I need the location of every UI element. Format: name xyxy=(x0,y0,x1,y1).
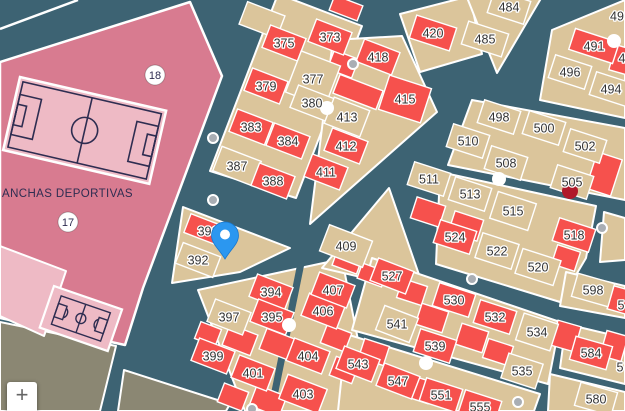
junction-dot-gray xyxy=(513,397,523,407)
parcel-label-413: 413 xyxy=(337,111,358,125)
parcel-label-494: 494 xyxy=(601,83,622,97)
parcel-label-373: 373 xyxy=(320,31,341,45)
parcel-label-388: 388 xyxy=(263,175,284,189)
parcel-label-547: 547 xyxy=(388,375,409,389)
parcel-label-412: 412 xyxy=(336,140,357,154)
parcel-label-513: 513 xyxy=(460,188,481,202)
parcel-label-fragment: 49 xyxy=(610,10,624,24)
parcel-label-539: 539 xyxy=(425,340,446,354)
parcel-label-379: 379 xyxy=(256,80,277,94)
parcel-label-530: 530 xyxy=(444,294,465,308)
parcel-label-484: 484 xyxy=(499,1,520,15)
parcel-label-527: 527 xyxy=(382,270,403,284)
parcel-label-404: 404 xyxy=(298,350,319,364)
parcel-label-496: 496 xyxy=(560,66,581,80)
block-pill-label-18: 18 xyxy=(149,70,161,82)
parcel-label-380: 380 xyxy=(302,97,323,111)
parcel-label-399: 399 xyxy=(203,350,224,364)
junction-dot-white xyxy=(282,318,296,332)
parcel-label-543: 543 xyxy=(348,358,369,372)
parcel-label-420: 420 xyxy=(423,27,444,41)
junction-dot-gray xyxy=(348,59,358,69)
junction-dot-gray xyxy=(597,223,607,233)
parcel-label-520: 520 xyxy=(528,261,549,275)
parcel-label-518: 518 xyxy=(564,229,585,243)
map-block xyxy=(600,212,625,262)
parcel-label-415: 415 xyxy=(395,93,416,107)
parcel-label-407: 407 xyxy=(323,284,344,298)
area-label-canchas-deportivas: ANCHAS DEPORTIVAS xyxy=(2,188,133,200)
parcel-label-411: 411 xyxy=(316,166,336,180)
parcel-label-397: 397 xyxy=(219,311,240,325)
parcel-label-534: 534 xyxy=(527,326,548,340)
parcel-label-584: 584 xyxy=(581,347,602,361)
parcel-label-555: 555 xyxy=(470,401,491,411)
block-pill-label-17: 17 xyxy=(62,217,74,229)
parcel-label-384: 384 xyxy=(278,135,299,149)
junction-dot-white xyxy=(492,172,506,186)
parcel-label-551: 551 xyxy=(431,389,452,403)
parcel-label-502: 502 xyxy=(575,140,596,154)
parcel-label-406: 406 xyxy=(313,305,334,319)
junction-dot-gray xyxy=(208,195,218,205)
parcel-label-598: 598 xyxy=(583,284,604,298)
junction-dot-white xyxy=(419,356,433,370)
parcel-label-491: 491 xyxy=(584,40,605,54)
map-canvas[interactable]: 3733753773793803833843873883913923943953… xyxy=(0,0,625,411)
parcel-label-535: 535 xyxy=(512,365,533,379)
parcel-label-fragment: 5 xyxy=(618,299,625,313)
junction-dot-gray xyxy=(208,133,218,143)
parcel-label-392: 392 xyxy=(188,254,209,268)
parcel-label-522: 522 xyxy=(487,245,508,259)
parcel-label-505: 505 xyxy=(562,176,583,190)
parcel-label-524: 524 xyxy=(445,231,466,245)
parcel-label-580: 580 xyxy=(586,393,607,407)
parcel-label-500: 500 xyxy=(534,122,555,136)
parcel-label-383: 383 xyxy=(241,121,262,135)
parcel-label-510: 510 xyxy=(458,135,479,149)
parcel-label-394: 394 xyxy=(261,286,282,300)
parcel-label-515: 515 xyxy=(503,205,524,219)
junction-dot-white xyxy=(607,34,621,48)
parcel-label-485: 485 xyxy=(475,33,496,47)
parcel-label-532: 532 xyxy=(485,311,506,325)
junction-dot-gray xyxy=(247,404,257,411)
parcel-label-498: 498 xyxy=(489,111,510,125)
parcel-label-395: 395 xyxy=(262,311,283,325)
parcel-label-377: 377 xyxy=(303,73,324,87)
parcel-label-fragment: 5 xyxy=(617,361,624,375)
junction-dot-gray xyxy=(467,274,477,284)
parcel-label-401: 401 xyxy=(243,367,264,381)
map-viewport[interactable]: 3733753773793803833843873883913923943953… xyxy=(0,0,625,411)
parcel-label-541: 541 xyxy=(387,318,408,332)
parcel-label-fragment: 4 xyxy=(619,52,625,66)
parcel-label-508: 508 xyxy=(496,157,517,171)
parcel-label-418: 418 xyxy=(368,51,389,65)
parcel-label-511: 511 xyxy=(419,173,439,187)
parcel-label-375: 375 xyxy=(274,37,295,51)
parcel-label-387: 387 xyxy=(227,160,248,174)
parcel-label-409: 409 xyxy=(336,240,357,254)
zoom-in-button[interactable]: + xyxy=(7,382,37,411)
parcel-label-403: 403 xyxy=(293,388,314,402)
